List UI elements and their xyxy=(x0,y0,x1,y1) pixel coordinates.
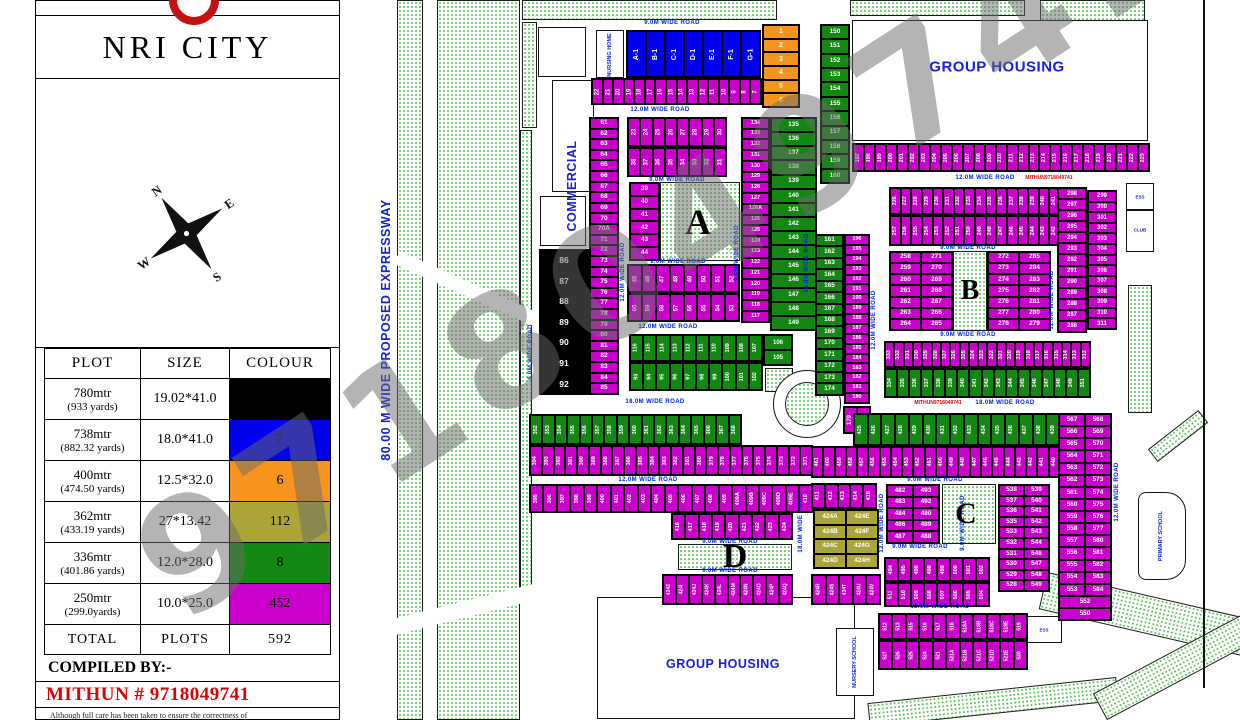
plot-390: 390 xyxy=(577,446,589,475)
plot-76: 76 xyxy=(590,288,618,299)
plot-494: 494 xyxy=(885,558,898,581)
plot-212: 212 xyxy=(1018,144,1029,171)
plot-337: 337 xyxy=(921,369,933,397)
plot-359: 359 xyxy=(617,415,629,444)
map-label-12-0m-wide-road: 12.0M WIDE ROAD xyxy=(1049,270,1055,329)
plot-541: 541 xyxy=(1024,506,1049,517)
plot-518: 518 xyxy=(946,614,959,639)
plot-261: 261 xyxy=(890,285,921,296)
plot-353: 353 xyxy=(542,415,554,444)
plot-201: 201 xyxy=(897,144,908,171)
plot-A-1: A-1 xyxy=(627,31,646,77)
plot-424A: 424A xyxy=(814,510,846,525)
plot-187: 187 xyxy=(845,324,869,334)
plot-block-row-411: 411412413414415 xyxy=(811,483,877,509)
plot-block-row-23: 2324252627282930 xyxy=(627,117,727,147)
plot-510: 510 xyxy=(898,583,911,606)
plot-424U: 424U xyxy=(853,575,867,604)
plot-138: 138 xyxy=(771,160,816,174)
plot-361: 361 xyxy=(642,415,654,444)
plot-408: 408 xyxy=(705,485,718,512)
plot-210: 210 xyxy=(996,144,1007,171)
plot-417: 417 xyxy=(685,514,698,539)
plot-block-top-mag: 22212019181716151413121110987 xyxy=(591,78,762,105)
plot-532: 532 xyxy=(999,538,1024,549)
plot-27: 27 xyxy=(677,118,689,146)
plot-459: 459 xyxy=(835,447,846,477)
plot-521A: 521A xyxy=(946,641,959,669)
plot-117: 117 xyxy=(742,311,769,322)
legend-body: 780mtr(933 yards)19.02*41.07738mtr(882.3… xyxy=(45,379,331,655)
plot-98: 98 xyxy=(696,363,709,390)
plot-77: 77 xyxy=(590,298,618,309)
plot-536: 536 xyxy=(999,506,1024,517)
plot-531: 531 xyxy=(999,549,1024,560)
plot-79: 79 xyxy=(590,320,618,331)
plot-556: 556 xyxy=(1059,547,1085,559)
plot-292: 292 xyxy=(1058,254,1086,265)
plot-22: 22 xyxy=(592,79,603,104)
plot-521: 521 xyxy=(933,641,946,669)
plot-29: 29 xyxy=(702,118,714,146)
plot-329: 329 xyxy=(922,342,931,367)
plot-583: 583 xyxy=(1085,572,1111,584)
plot-173: 173 xyxy=(816,372,843,383)
plot-424I: 424I xyxy=(676,575,689,604)
plot-block-row-424R: 424R424S424T424U424V xyxy=(811,574,881,605)
plot-574: 574 xyxy=(1085,487,1111,499)
map-label-primary-school: PRIMARY SCHOOL xyxy=(1158,511,1164,561)
plot-339: 339 xyxy=(945,369,957,397)
map-label-9-0m-wide-road: 9.0M WIDE ROAD xyxy=(649,177,705,183)
plot-32: 32 xyxy=(702,148,714,176)
plot-303: 303 xyxy=(1088,233,1116,244)
plot-407: 407 xyxy=(692,485,705,512)
plot-543: 543 xyxy=(1024,527,1049,538)
plot-343: 343 xyxy=(994,369,1006,397)
plot-74: 74 xyxy=(590,267,618,278)
plot-448: 448 xyxy=(958,447,969,477)
plot-235: 235 xyxy=(986,188,997,214)
plot-block-row-512: 512513515516517518518A518B518C518E519 xyxy=(878,613,1028,640)
plot-35: 35 xyxy=(665,148,677,176)
open-plot xyxy=(538,27,586,77)
plot-289: 289 xyxy=(1058,288,1086,299)
plot-571: 571 xyxy=(1085,450,1111,462)
plot-320: 320 xyxy=(1006,342,1015,367)
plot-511: 511 xyxy=(885,583,898,606)
plot-58: 58 xyxy=(656,294,670,321)
plot-26: 26 xyxy=(665,118,677,146)
plot-142: 142 xyxy=(771,217,816,231)
plot-358: 358 xyxy=(604,415,616,444)
plot-block-row-527: 527526525524521521A521B521C521D521E520 xyxy=(878,640,1028,670)
plot-11: 11 xyxy=(708,79,719,104)
map-label-9-0m-wide-road: 9.0M WIDE ROAD xyxy=(940,332,996,338)
plot-388: 388 xyxy=(601,446,613,475)
plot-7: 7 xyxy=(750,79,761,104)
plot-404: 404 xyxy=(651,485,664,512)
plot-316: 316 xyxy=(1043,342,1052,367)
plot-105: 105 xyxy=(764,350,792,365)
map-label-9-0m-wide-road: 9.0M WIDE ROAD xyxy=(734,225,740,281)
plot-540: 540 xyxy=(1024,496,1049,507)
plot-2: 2 xyxy=(763,39,799,53)
legend-row: 780mtr(933 yards)19.02*41.07 xyxy=(45,379,331,420)
plot-342: 342 xyxy=(982,369,994,397)
legend-colour-swatch: 7 xyxy=(230,379,331,420)
plot-402: 402 xyxy=(624,485,637,512)
plot-366: 366 xyxy=(704,415,716,444)
map-label-80-00-m-wide-proposed-expressway: 80.00 M WIDE PROPOSED EXPRESSWAY xyxy=(379,199,393,460)
plot-424R: 424R xyxy=(812,575,826,604)
plot-368: 368 xyxy=(729,415,741,444)
plot-437: 437 xyxy=(1019,414,1033,445)
plot-207: 207 xyxy=(963,144,974,171)
plot-61: 61 xyxy=(590,118,618,129)
map-label-9-0m-wide-road: 9.0M WIDE ROAD xyxy=(650,259,706,265)
plot-190: 190 xyxy=(845,294,869,304)
plot-137: 137 xyxy=(771,146,816,160)
nri-city-layout-page: A-1B-1C-1D-1E-1F-1G-12221201918171615141… xyxy=(0,0,1240,720)
plot-424: 424 xyxy=(779,514,792,539)
plot-380: 380 xyxy=(695,446,707,475)
plot-111: 111 xyxy=(696,335,709,361)
plot-block-row-38: 3837363534333231 xyxy=(627,147,727,177)
plot-567: 567 xyxy=(1059,414,1085,426)
plot-550: 550 xyxy=(1059,608,1111,620)
plot-121: 121 xyxy=(742,268,769,279)
plot-block-pair-106: 106105 xyxy=(763,334,793,366)
plot-391: 391 xyxy=(565,446,577,475)
plot-209: 209 xyxy=(985,144,996,171)
left-panel: NRI CITY N E S W PLOT SIZE COLOUR 780mtr… xyxy=(35,0,340,720)
plot-260: 260 xyxy=(890,274,921,285)
plot-block-row-461: 4614604594584574564554544534524514504494… xyxy=(811,446,1061,478)
plot-F-1: F-1 xyxy=(722,31,741,77)
plot-248: 248 xyxy=(986,216,997,245)
plot-414: 414 xyxy=(850,484,863,508)
plot-313: 313 xyxy=(1071,342,1080,367)
plot-318: 318 xyxy=(1025,342,1034,367)
legend-colour-swatch: 7 xyxy=(230,420,331,461)
plot-411: 411 xyxy=(812,484,825,508)
compass-south-label: S xyxy=(210,269,224,284)
plot-517: 517 xyxy=(933,614,946,639)
plot-299: 299 xyxy=(1088,191,1116,202)
plot-374: 374 xyxy=(765,446,777,475)
plot-227: 227 xyxy=(901,188,912,214)
map-label-12-0m-wide-road: 12.0M WIDE ROAD xyxy=(1114,462,1120,521)
legend-row: 362mtr(433.19 yards)27*13.42112 xyxy=(45,502,331,543)
plot-214: 214 xyxy=(1039,144,1050,171)
map-label-nursing-home: NURSING HOME xyxy=(607,33,613,76)
plot-504: 504 xyxy=(976,583,989,606)
plot-344: 344 xyxy=(1006,369,1018,397)
plot-251: 251 xyxy=(954,216,965,245)
plot-456: 456 xyxy=(868,447,879,477)
plot-455: 455 xyxy=(880,447,891,477)
plot-394: 394 xyxy=(530,446,542,475)
plot-240: 240 xyxy=(1039,188,1050,214)
plot-250: 250 xyxy=(964,216,975,245)
plot-403: 403 xyxy=(638,485,651,512)
map-label-group-housing: GROUP HOUSING xyxy=(666,657,780,671)
plot-23: 23 xyxy=(628,118,640,146)
plot-90: 90 xyxy=(540,332,588,353)
plot-49: 49 xyxy=(684,265,698,292)
map-label-18-0m-wide-road: 18.0M WIDE ROAD xyxy=(975,400,1034,406)
plot-302: 302 xyxy=(1088,223,1116,234)
plot-412: 412 xyxy=(825,484,838,508)
plot-398: 398 xyxy=(570,485,583,512)
plot-12: 12 xyxy=(698,79,709,104)
plot-381: 381 xyxy=(683,446,695,475)
plot-566: 566 xyxy=(1059,426,1085,438)
plot-570: 570 xyxy=(1085,438,1111,450)
plot-293: 293 xyxy=(1058,243,1086,254)
plot-171: 171 xyxy=(816,349,843,360)
page-title: NRI CITY xyxy=(36,16,339,79)
plot-509: 509 xyxy=(911,583,924,606)
plot-421: 421 xyxy=(739,514,752,539)
plot-505: 505 xyxy=(963,583,976,606)
plot-396: 396 xyxy=(543,485,556,512)
plot-230: 230 xyxy=(933,188,944,214)
plot-424H: 424H xyxy=(846,554,878,569)
plot-447: 447 xyxy=(970,447,981,477)
plot-89: 89 xyxy=(540,312,588,333)
plot-506: 506 xyxy=(950,583,963,606)
plot-128: 128 xyxy=(742,182,769,193)
plot-106: 106 xyxy=(764,335,792,350)
legend-colour-swatch: 452 xyxy=(230,584,331,625)
plot-355: 355 xyxy=(567,415,579,444)
legend-row: 400mtr(474.50 yards)12.5*32.06 xyxy=(45,461,331,502)
plot-200: 200 xyxy=(886,144,897,171)
plot-538: 538 xyxy=(999,485,1024,496)
plot-392: 392 xyxy=(554,446,566,475)
map-label-12-0m-wide-road: 12.0M WIDE ROAD xyxy=(638,324,697,330)
plot-211: 211 xyxy=(1007,144,1018,171)
plot-385: 385 xyxy=(636,446,648,475)
plot-482: 482 xyxy=(887,485,913,497)
plot-572: 572 xyxy=(1085,463,1111,475)
plot-48: 48 xyxy=(670,265,684,292)
plot-483: 483 xyxy=(887,497,913,509)
compass-east-label: E xyxy=(222,196,237,212)
plot-270: 270 xyxy=(921,263,952,274)
plot-268: 268 xyxy=(921,285,952,296)
plot-290: 290 xyxy=(1058,277,1086,288)
plot-block-col-299: 299300301302303304305306307308309310311 xyxy=(1087,190,1117,330)
map-label-18-0m-wide-road: 18.0M WIDE ROAD xyxy=(625,399,684,405)
plot-265: 265 xyxy=(921,319,952,330)
plot-208: 208 xyxy=(974,144,985,171)
plot-134: 134 xyxy=(742,118,769,129)
plot-321: 321 xyxy=(997,342,1006,367)
plot-428: 428 xyxy=(895,414,909,445)
open-plot xyxy=(540,196,586,246)
plot-438: 438 xyxy=(1033,414,1047,445)
plot-231: 231 xyxy=(943,188,954,214)
plot-197: 197 xyxy=(853,144,864,171)
legend-row: 250mtr(299.0yards)10.0*25.0452 xyxy=(45,584,331,625)
plot-262: 262 xyxy=(890,297,921,308)
plot-373: 373 xyxy=(777,446,789,475)
plot-435: 435 xyxy=(991,414,1005,445)
plot-213: 213 xyxy=(1029,144,1040,171)
plot-17: 17 xyxy=(645,79,656,104)
plot-148: 148 xyxy=(771,302,816,316)
plot-431: 431 xyxy=(936,414,950,445)
plot-307: 307 xyxy=(1088,276,1116,287)
plot-317: 317 xyxy=(1034,342,1043,367)
plot-42: 42 xyxy=(630,221,659,234)
plot-257: 257 xyxy=(890,216,901,245)
plot-314: 314 xyxy=(1062,342,1071,367)
plot-14: 14 xyxy=(677,79,688,104)
plot-518E: 518E xyxy=(1000,614,1013,639)
plot-87: 87 xyxy=(540,271,588,292)
legend-row: 336mtr(401.86 yards)12.0*28.08 xyxy=(45,543,331,584)
plot-block-grid-272: 2722852732842742832752822762812772802782… xyxy=(987,251,1051,331)
plot-518C: 518C xyxy=(987,614,1000,639)
plot-409C: 409C xyxy=(759,485,772,512)
plot-537: 537 xyxy=(999,496,1024,507)
plot-375: 375 xyxy=(753,446,765,475)
plot-112: 112 xyxy=(683,335,696,361)
plot-67: 67 xyxy=(590,182,618,193)
plot-281: 281 xyxy=(1019,297,1050,308)
plot-215: 215 xyxy=(1050,144,1061,171)
plot-336: 336 xyxy=(909,369,921,397)
legend-colour-swatch: 8 xyxy=(230,543,331,584)
plot-547: 547 xyxy=(1024,559,1049,570)
plot-568: 568 xyxy=(1085,414,1111,426)
plot-133: 133 xyxy=(742,129,769,140)
plot-490: 490 xyxy=(913,508,939,520)
plot-553: 553 xyxy=(1059,584,1085,596)
plot-block-mag-61: 6162636465666768697070A71727374757677787… xyxy=(589,117,619,395)
plot-283: 283 xyxy=(1019,274,1050,285)
plot-73: 73 xyxy=(590,256,618,267)
plot-172: 172 xyxy=(816,361,843,372)
plot-330: 330 xyxy=(913,342,922,367)
green-strip-top xyxy=(850,0,1025,16)
plot-53: 53 xyxy=(725,294,739,321)
plot-495: 495 xyxy=(898,558,911,581)
plot-88: 88 xyxy=(540,291,588,312)
plot-496: 496 xyxy=(911,558,924,581)
plot-91: 91 xyxy=(540,353,588,374)
plot-block-row-424I: 424Z424I424J424K424L424M424N424O424P424Q xyxy=(662,574,793,605)
plot-562: 562 xyxy=(1059,475,1085,487)
plot-16: 16 xyxy=(655,79,666,104)
plot-block-green-135: 1351361371381391401411421431441451461471… xyxy=(770,117,817,331)
plot-377: 377 xyxy=(730,446,742,475)
map-label-ess: ESS xyxy=(1135,195,1144,200)
plot-499: 499 xyxy=(937,558,950,581)
plot-50: 50 xyxy=(697,265,711,292)
legend-size: 12.5*32.0 xyxy=(141,461,230,502)
plot-308: 308 xyxy=(1088,286,1116,297)
plot-446: 446 xyxy=(981,447,992,477)
plot-82: 82 xyxy=(590,351,618,362)
plot-273: 273 xyxy=(988,263,1019,274)
plot-21: 21 xyxy=(603,79,614,104)
plot-426: 426 xyxy=(868,414,882,445)
plot-338: 338 xyxy=(933,369,945,397)
plot-449: 449 xyxy=(947,447,958,477)
plot-25: 25 xyxy=(653,118,665,146)
plot-97: 97 xyxy=(683,363,696,390)
plot-226: 226 xyxy=(890,188,901,214)
plot-573: 573 xyxy=(1085,475,1111,487)
plot-444: 444 xyxy=(1004,447,1015,477)
map-label-group-housing: GROUP HOUSING xyxy=(929,59,1064,76)
plot-160: 160 xyxy=(821,169,849,183)
map-label-18-0m-wide-road: 18.0M WIDE ROAD xyxy=(804,233,810,292)
plot-304: 304 xyxy=(1088,244,1116,255)
plot-424D: 424D xyxy=(814,554,846,569)
plot-518A: 518A xyxy=(960,614,973,639)
plot-311: 311 xyxy=(1088,318,1116,329)
plot-163: 163 xyxy=(816,258,843,269)
map-label-12-0m-wide-road: 12.0M WIDE ROAD xyxy=(630,107,689,113)
plot-228: 228 xyxy=(911,188,922,214)
plot-300: 300 xyxy=(1088,202,1116,213)
plot-D-1: D-1 xyxy=(684,31,703,77)
plot-block-row-425: 4254264274284294304314324334344354364374… xyxy=(853,413,1061,446)
plot-188: 188 xyxy=(845,314,869,324)
plot-269: 269 xyxy=(921,274,952,285)
plot-357: 357 xyxy=(592,415,604,444)
plot-310: 310 xyxy=(1088,308,1116,319)
plot-99: 99 xyxy=(709,363,722,390)
plot-427: 427 xyxy=(881,414,895,445)
plot-80: 80 xyxy=(590,330,618,341)
plot-285: 285 xyxy=(1019,252,1050,263)
plot-284: 284 xyxy=(1019,263,1050,274)
plot-156: 156 xyxy=(821,111,849,125)
plot-280: 280 xyxy=(1019,308,1050,319)
plot-432: 432 xyxy=(950,414,964,445)
plot-378: 378 xyxy=(718,446,730,475)
plot-575: 575 xyxy=(1085,499,1111,511)
plot-286: 286 xyxy=(1058,321,1086,332)
plot-113: 113 xyxy=(670,335,683,361)
plot-122: 122 xyxy=(742,258,769,269)
plot-block-olive-424: 424A424E424B424F424C424G424D424H xyxy=(813,509,879,569)
plot-382: 382 xyxy=(671,446,683,475)
plot-194: 194 xyxy=(845,255,869,265)
plot-558: 558 xyxy=(1059,523,1085,535)
map-label-ess: ESS xyxy=(1039,628,1048,633)
plot-block-top-blue: A-1B-1C-1D-1E-1F-1G-1 xyxy=(626,30,761,78)
plot-195: 195 xyxy=(845,245,869,255)
plot-518B: 518B xyxy=(973,614,986,639)
plot-291: 291 xyxy=(1058,266,1086,277)
plot-296: 296 xyxy=(1058,210,1086,221)
plot-401: 401 xyxy=(611,485,624,512)
plot-298: 298 xyxy=(1058,188,1086,199)
plot-149: 149 xyxy=(771,316,816,330)
plot-487: 487 xyxy=(887,531,913,543)
plot-101: 101 xyxy=(736,363,749,390)
plot-581: 581 xyxy=(1085,547,1111,559)
sector-letter-b: B xyxy=(961,275,980,307)
